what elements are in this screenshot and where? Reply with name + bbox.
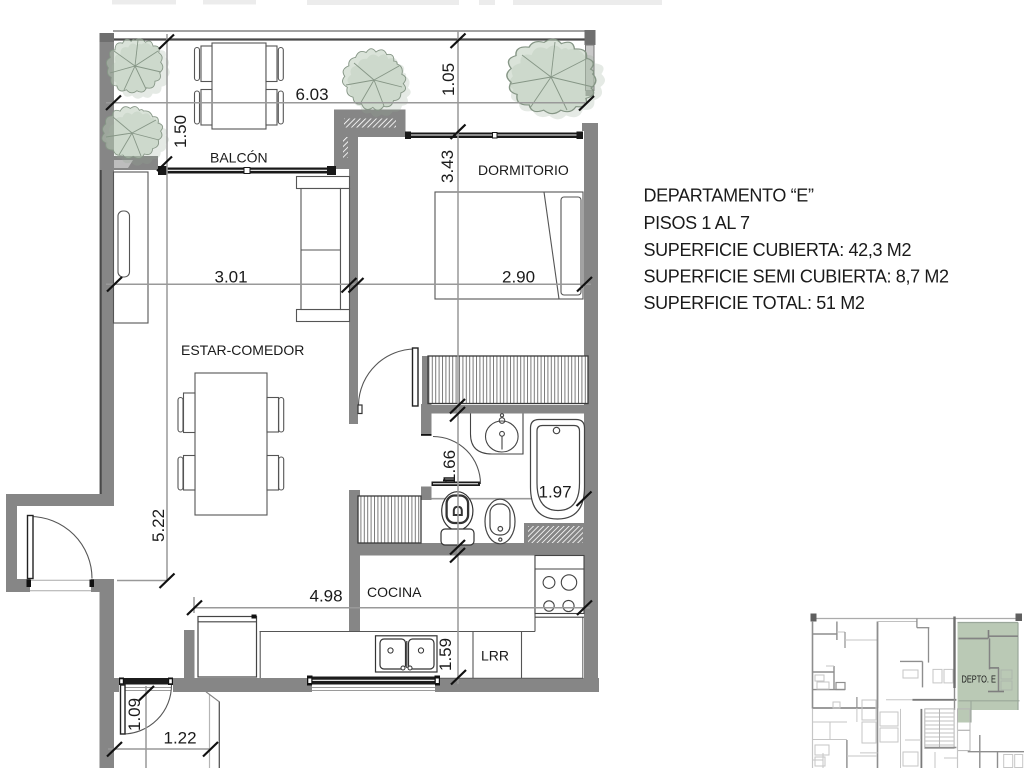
svg-text:1.22: 1.22	[164, 729, 197, 748]
svg-text:1.59: 1.59	[436, 638, 455, 671]
svg-text:3.01: 3.01	[215, 268, 248, 287]
svg-text:DEPTO. E: DEPTO. E	[962, 675, 997, 686]
svg-text:2.90: 2.90	[502, 268, 535, 287]
svg-text:BALCÓN: BALCÓN	[210, 149, 268, 165]
svg-text:DORMITORIO: DORMITORIO	[478, 162, 569, 178]
svg-text:4.98: 4.98	[310, 587, 343, 606]
svg-text:SUPERFICIE CUBIERTA: 42,3 M2: SUPERFICIE CUBIERTA: 42,3 M2	[644, 240, 912, 260]
svg-text:1.97: 1.97	[539, 483, 572, 502]
svg-text:PISOS 1 AL 7: PISOS 1 AL 7	[644, 213, 751, 233]
svg-text:1.50: 1.50	[171, 115, 190, 148]
svg-text:ESTAR-COMEDOR: ESTAR-COMEDOR	[181, 342, 304, 358]
svg-text:DEPARTAMENTO “E”: DEPARTAMENTO “E”	[644, 185, 814, 205]
svg-text:COCINA: COCINA	[367, 584, 422, 600]
svg-text:1.66: 1.66	[440, 450, 459, 483]
svg-text:LRR: LRR	[481, 648, 509, 664]
svg-text:1.05: 1.05	[439, 63, 458, 96]
svg-text:SUPERFICIE TOTAL: 51 M2: SUPERFICIE TOTAL: 51 M2	[644, 293, 865, 313]
svg-text:6.03: 6.03	[296, 85, 329, 104]
svg-text:3.43: 3.43	[438, 150, 457, 183]
svg-text:1.09: 1.09	[125, 698, 144, 731]
svg-text:SUPERFICIE SEMI CUBIERTA: 8,7: SUPERFICIE SEMI CUBIERTA: 8,7 M2	[644, 266, 950, 286]
svg-text:5.22: 5.22	[149, 509, 168, 542]
